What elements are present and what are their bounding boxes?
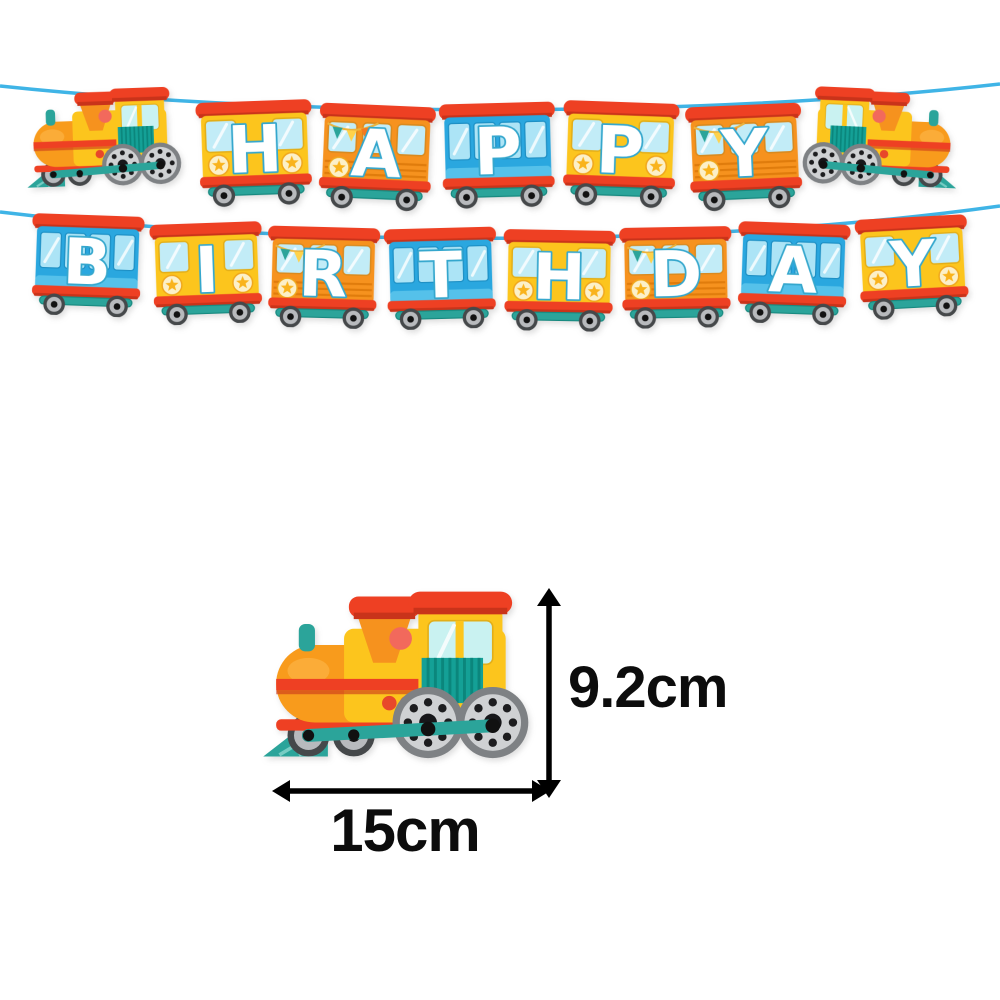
train-engine-right bbox=[798, 88, 960, 193]
car-letter: T bbox=[419, 238, 464, 312]
product-image: H A P P Y B I bbox=[0, 0, 1000, 1000]
train-car: R bbox=[264, 226, 382, 328]
car-letter: D bbox=[649, 237, 703, 311]
train-car: Y bbox=[684, 104, 806, 210]
train-car: D bbox=[617, 226, 735, 328]
car-letter: H bbox=[226, 112, 283, 189]
train-car: P bbox=[559, 101, 681, 207]
car-letter: R bbox=[298, 237, 348, 311]
train-car: T bbox=[382, 227, 500, 329]
train-car: I bbox=[148, 222, 266, 324]
car-letter: A bbox=[767, 233, 819, 308]
car-letter: I bbox=[194, 233, 220, 307]
train-car: H bbox=[194, 100, 316, 206]
car-letter: Y bbox=[719, 116, 771, 193]
car-letter: A bbox=[349, 116, 403, 193]
train-engine-size-reference bbox=[260, 590, 538, 771]
train-car: B bbox=[28, 214, 146, 316]
car-letter: Y bbox=[887, 227, 939, 302]
car-letter: H bbox=[532, 240, 586, 314]
train-car: P bbox=[437, 102, 559, 208]
car-letter: P bbox=[595, 113, 645, 190]
train-car: A bbox=[734, 222, 852, 324]
width-label: 15cm bbox=[300, 796, 510, 865]
car-letter: B bbox=[62, 225, 112, 300]
train-car: H bbox=[500, 229, 618, 331]
train-car: A bbox=[315, 104, 437, 210]
height-arrow-icon bbox=[530, 586, 568, 800]
height-label: 9.2cm bbox=[568, 654, 727, 721]
car-letter: P bbox=[473, 115, 523, 191]
train-car: Y bbox=[854, 216, 972, 318]
train-engine-left bbox=[24, 88, 186, 193]
